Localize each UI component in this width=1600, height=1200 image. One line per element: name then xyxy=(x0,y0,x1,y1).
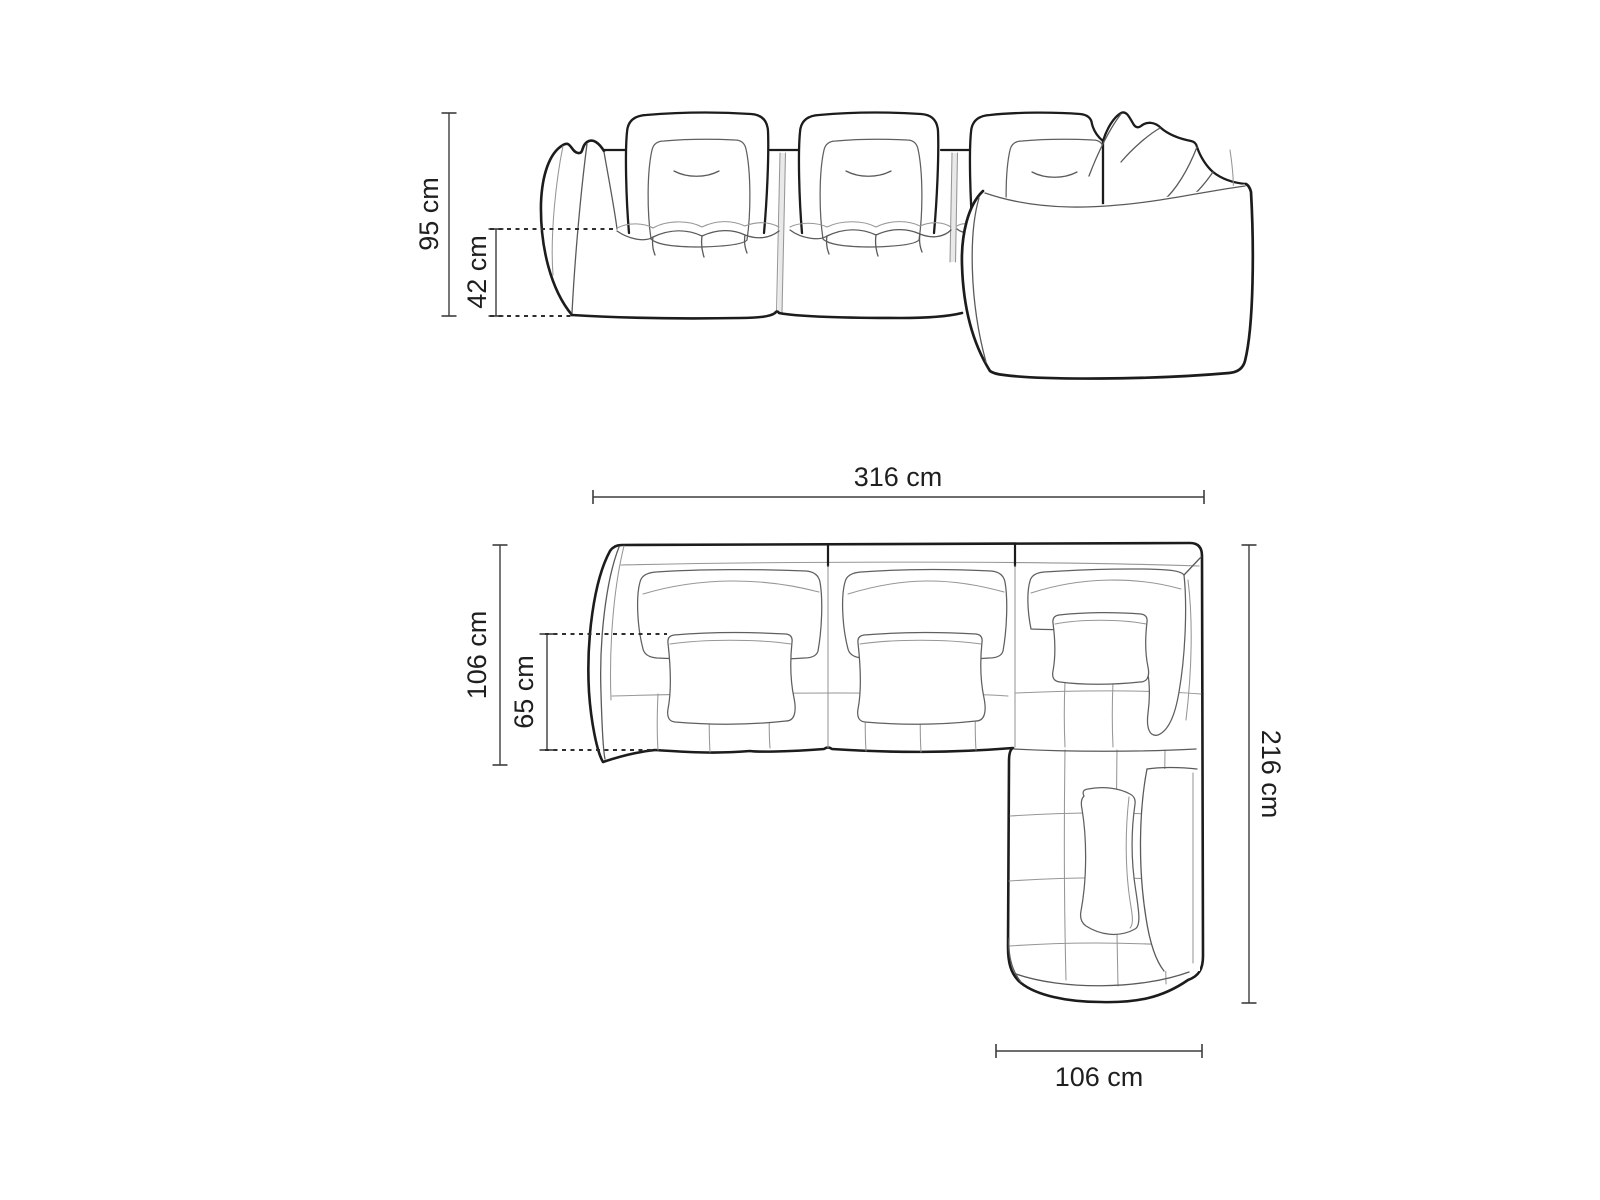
seat-front-edge xyxy=(572,312,962,319)
dim-label-chaise-width: 106 cm xyxy=(1055,1062,1144,1092)
dim-chaise-width: 106 cm xyxy=(996,1044,1202,1092)
top-plan-view: 316 cm 106 cm 65 cm 2 xyxy=(462,462,1286,1092)
plan-seat-pillow xyxy=(668,633,796,725)
left-arm-outline xyxy=(541,141,604,315)
dim-label-seat-height: 42 cm xyxy=(462,235,492,309)
dim-label-overall-width: 316 cm xyxy=(854,462,943,492)
elevation-extension-lines xyxy=(490,229,617,316)
dim-seat-depth: 65 cm xyxy=(509,634,555,750)
plan-corner-seat-pillow xyxy=(1053,613,1149,685)
pillow xyxy=(820,139,922,247)
technical-drawing-canvas: 95 cm 42 cm xyxy=(0,0,1600,1200)
plan-left-arm xyxy=(601,546,624,759)
dim-label-overall-height: 95 cm xyxy=(414,177,444,251)
dim-label-seat-depth: 65 cm xyxy=(509,655,539,729)
left-arm xyxy=(541,141,617,315)
dim-overall-width: 316 cm xyxy=(593,462,1204,504)
dim-label-overall-depth: 216 cm xyxy=(1256,730,1286,819)
plan-sofa-drawing xyxy=(588,543,1203,1002)
plan-seat-pillow xyxy=(858,633,986,725)
front-elevation-view: 95 cm 42 cm xyxy=(414,112,1253,378)
dim-overall-depth: 216 cm xyxy=(1242,545,1287,1003)
sofa-dimension-diagram: 95 cm 42 cm xyxy=(0,0,1600,1200)
chaise-section xyxy=(1009,749,1200,986)
dim-row-depth: 106 cm xyxy=(462,545,508,765)
dim-seat-height: 42 cm xyxy=(462,229,504,316)
dim-overall-height: 95 cm xyxy=(414,113,457,316)
chaise-long-pillow xyxy=(1081,788,1139,935)
dim-label-row-depth: 106 cm xyxy=(462,611,492,700)
elevation-sofa-drawing xyxy=(541,112,1253,378)
corner-unit xyxy=(962,184,1253,379)
